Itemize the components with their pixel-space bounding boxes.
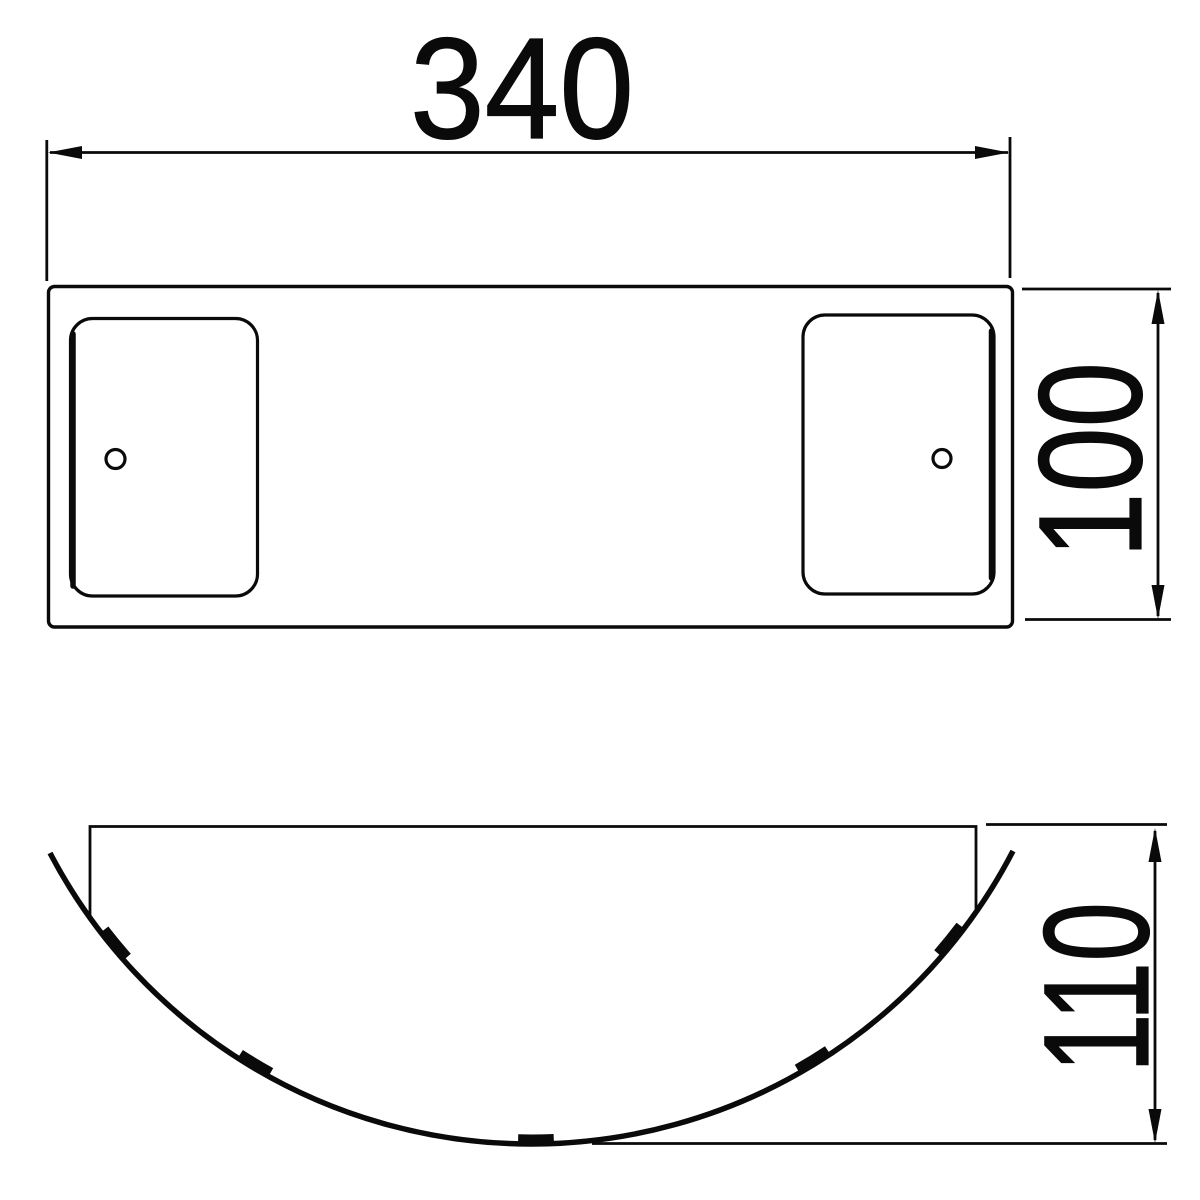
svg-text:340: 340: [410, 8, 634, 169]
svg-text:100: 100: [1009, 362, 1173, 558]
